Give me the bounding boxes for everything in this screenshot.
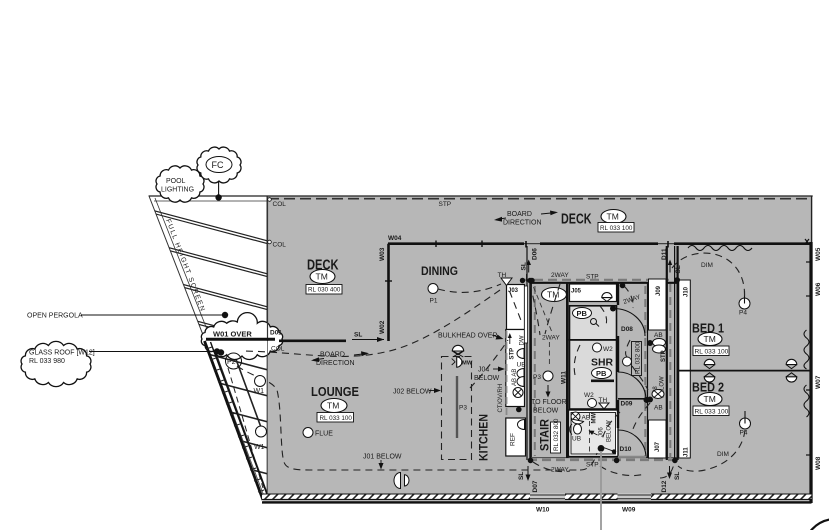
svg-text:GLASS ROOF [W12]: GLASS ROOF [W12] [29, 350, 95, 357]
svg-text:TM: TM [327, 401, 339, 411]
svg-text:SL: SL [518, 472, 525, 480]
svg-text:LOUNGE: LOUNGE [311, 384, 359, 399]
svg-text:P3: P3 [533, 374, 541, 381]
svg-text:SL: SL [675, 265, 682, 273]
svg-text:PB: PB [577, 309, 588, 318]
svg-text:RL 033 980: RL 033 980 [29, 358, 65, 365]
svg-text:BELOW: BELOW [533, 408, 559, 415]
svg-text:AB AB: AB AB [512, 369, 518, 386]
svg-text:TM: TM [547, 290, 559, 300]
svg-text:SL: SL [521, 262, 528, 270]
svg-text:J11: J11 [684, 447, 690, 457]
svg-text:J09: J09 [656, 285, 662, 296]
svg-text:STP: STP [510, 348, 516, 360]
svg-text:D07: D07 [532, 480, 539, 492]
svg-text:AB: AB [654, 405, 663, 412]
svg-text:REF: REF [510, 433, 517, 446]
svg-text:D06: D06 [532, 248, 539, 260]
svg-text:DIM: DIM [701, 262, 713, 269]
svg-text:D08: D08 [621, 326, 633, 333]
svg-text:DW: DW [520, 335, 526, 345]
svg-text:RL 032 800: RL 032 800 [553, 418, 560, 451]
svg-text:D11: D11 [661, 248, 668, 260]
svg-text:TM: TM [316, 272, 328, 282]
svg-text:W09: W09 [622, 507, 636, 514]
svg-text:DIRECTION: DIRECTION [316, 360, 355, 367]
svg-text:BOARD: BOARD [507, 211, 532, 218]
svg-text:FLUE: FLUE [315, 431, 333, 438]
svg-text:UB: UB [572, 436, 581, 443]
svg-text:W10: W10 [536, 507, 550, 514]
svg-text:DECK: DECK [561, 212, 592, 228]
svg-text:POOL: POOL [166, 178, 186, 185]
svg-text:SL: SL [354, 332, 362, 339]
svg-text:W1: W1 [254, 444, 265, 451]
svg-text:J07: J07 [655, 441, 661, 452]
svg-text:FC: FC [212, 160, 224, 170]
svg-text:W11: W11 [561, 371, 568, 384]
svg-text:P2: P2 [227, 359, 236, 366]
svg-text:TM: TM [607, 212, 619, 222]
svg-text:STP: STP [586, 274, 599, 281]
svg-text:LIGHTING: LIGHTING [161, 187, 194, 194]
svg-text:D10: D10 [620, 446, 632, 453]
svg-text:COL: COL [273, 201, 287, 208]
svg-text:MW: MW [462, 361, 473, 367]
svg-text:W01 OVER: W01 OVER [213, 330, 252, 339]
svg-text:COL: COL [273, 242, 287, 249]
svg-text:OPEN PERGOLA: OPEN PERGOLA [27, 313, 83, 320]
svg-text:RL 033 100: RL 033 100 [600, 225, 633, 232]
svg-text:J05: J05 [571, 289, 582, 295]
svg-text:W06: W06 [815, 282, 822, 296]
svg-text:TO FLOOR: TO FLOOR [531, 399, 567, 406]
svg-text:DINING: DINING [421, 264, 458, 278]
svg-text:DIM: DIM [717, 451, 729, 458]
svg-text:W2: W2 [584, 392, 594, 399]
svg-text:P1: P1 [430, 298, 438, 305]
svg-text:AB: AB [582, 415, 591, 422]
svg-text:RL 030 400: RL 030 400 [308, 287, 341, 294]
svg-text:W08: W08 [815, 456, 822, 470]
svg-text:BOARD: BOARD [320, 352, 345, 359]
svg-text:TM: TM [704, 334, 716, 344]
svg-text:J01 BELOW: J01 BELOW [363, 454, 402, 461]
svg-text:BULKHEAD OVER: BULKHEAD OVER [438, 333, 498, 340]
svg-text:W07: W07 [815, 375, 822, 389]
svg-text:PB: PB [596, 369, 607, 378]
svg-text:W04: W04 [388, 235, 402, 242]
svg-text:SL: SL [674, 472, 681, 480]
svg-text:D09: D09 [621, 401, 633, 408]
svg-text:J10: J10 [684, 286, 690, 297]
svg-text:RL 033 100: RL 033 100 [695, 409, 729, 416]
svg-text:STP: STP [661, 350, 667, 362]
svg-text:MW: MW [592, 413, 598, 424]
svg-text:RL 033 100: RL 033 100 [320, 415, 353, 422]
svg-text:UB: UB [517, 362, 526, 369]
svg-text:P3: P3 [459, 405, 467, 412]
svg-text:AB: AB [654, 332, 663, 339]
svg-text:SHR: SHR [591, 357, 613, 369]
svg-text:CT/OV/RH: CT/OV/RH [498, 384, 504, 413]
svg-text:STP: STP [439, 201, 452, 208]
svg-text:P4: P4 [739, 310, 747, 317]
svg-text:W03: W03 [379, 247, 386, 261]
svg-text:D12: D12 [661, 480, 668, 492]
svg-text:W02: W02 [379, 320, 386, 334]
svg-text:RL 032 800: RL 032 800 [635, 341, 642, 374]
svg-text:KITCHEN: KITCHEN [477, 414, 491, 461]
svg-text:COL: COL [271, 346, 285, 353]
svg-text:RL 033 100: RL 033 100 [695, 349, 729, 356]
svg-text:W05: W05 [815, 247, 822, 261]
svg-text:W1: W1 [254, 388, 265, 395]
svg-text:DIRECTION: DIRECTION [503, 220, 542, 227]
svg-text:TM: TM [704, 394, 716, 404]
svg-text:W2: W2 [603, 346, 613, 353]
svg-text:STAIR: STAIR [538, 419, 552, 451]
svg-text:J02 BELOW: J02 BELOW [393, 389, 432, 396]
svg-text:2WAY: 2WAY [542, 335, 560, 342]
svg-text:2WAY: 2WAY [551, 272, 569, 279]
svg-text:D01: D01 [270, 330, 282, 337]
